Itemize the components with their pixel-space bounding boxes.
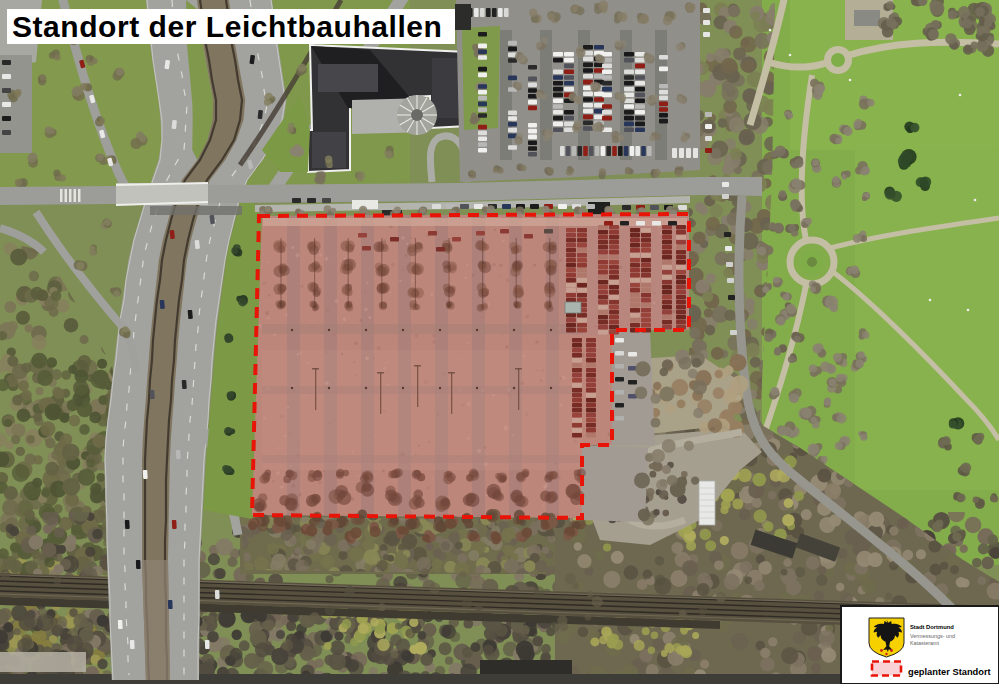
svg-text:Standort der Leichtbauhallen: Standort der Leichtbauhallen — [12, 10, 442, 43]
svg-text:Katasteramt: Katasteramt — [910, 640, 940, 646]
svg-text:geplanter Standort: geplanter Standort — [908, 667, 991, 677]
svg-text:Stadt Dortmund: Stadt Dortmund — [910, 624, 954, 630]
svg-text:Vermessungs- und: Vermessungs- und — [910, 633, 955, 639]
